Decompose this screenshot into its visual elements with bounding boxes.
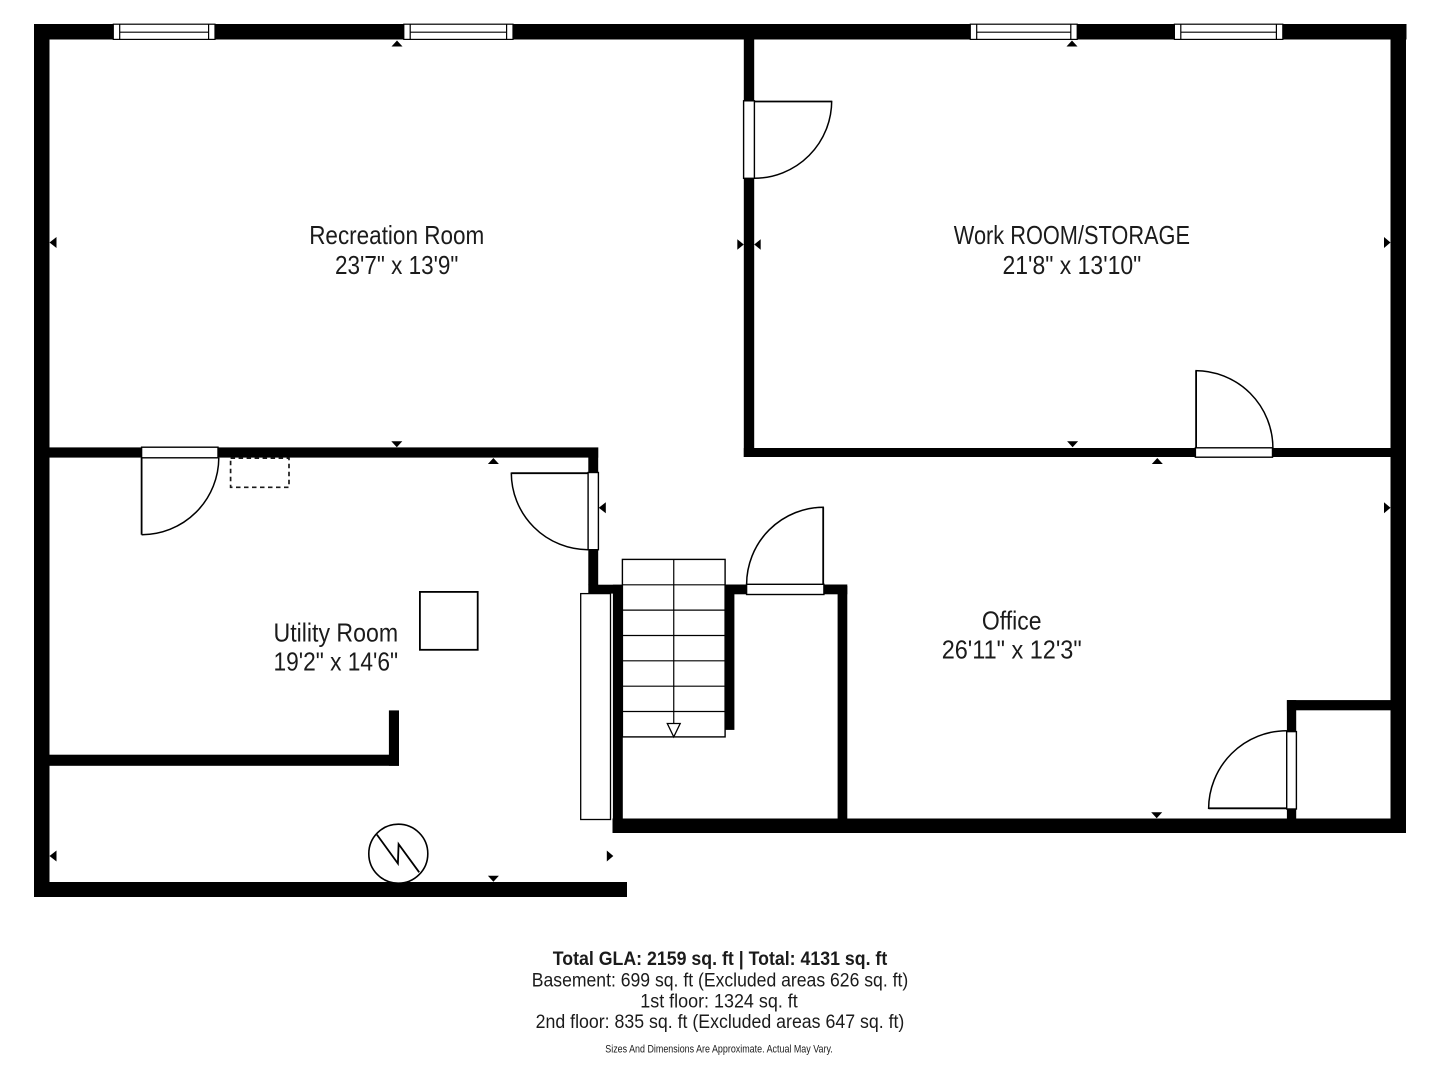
svg-text:Sizes And Dimensions Are Appro: Sizes And Dimensions Are Approximate. Ac… bbox=[605, 1044, 833, 1056]
svg-text:21'8" x 13'10": 21'8" x 13'10" bbox=[1003, 250, 1142, 280]
svg-text:2nd floor: 835 sq. ft (Exclude: 2nd floor: 835 sq. ft (Excluded areas 64… bbox=[536, 1012, 905, 1033]
svg-text:Recreation Room: Recreation Room bbox=[309, 220, 484, 250]
svg-text:19'2" x 14'6": 19'2" x 14'6" bbox=[274, 647, 399, 677]
svg-text:26'11" x 12'3": 26'11" x 12'3" bbox=[942, 634, 1082, 664]
svg-text:Total GLA: 2159 sq. ft | Total: Total GLA: 2159 sq. ft | Total: 4131 sq.… bbox=[553, 949, 888, 970]
svg-text:Basement: 699 sq. ft (Excluded: Basement: 699 sq. ft (Excluded areas 626… bbox=[532, 970, 909, 991]
svg-text:Work ROOM/STORAGE: Work ROOM/STORAGE bbox=[954, 220, 1190, 250]
svg-text:Office: Office bbox=[982, 605, 1042, 635]
svg-text:Utility Room: Utility Room bbox=[274, 618, 399, 648]
svg-text:23'7" x 13'9": 23'7" x 13'9" bbox=[335, 250, 458, 280]
svg-text:1st floor: 1324 sq. ft: 1st floor: 1324 sq. ft bbox=[640, 992, 798, 1013]
